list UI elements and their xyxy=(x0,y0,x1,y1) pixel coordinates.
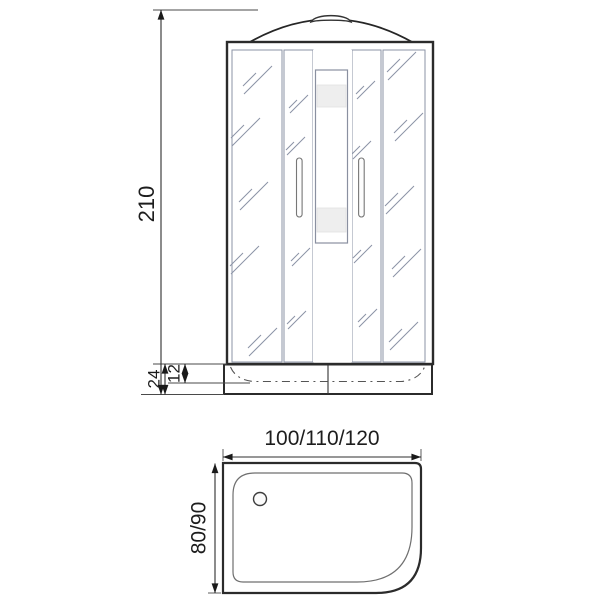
plan-view xyxy=(223,463,421,593)
dim-label-height: 210 xyxy=(134,186,159,223)
technical-drawing-page: 210 24 12 100/110/120 80/90 xyxy=(0,0,600,600)
shower-cabin-drawing: 210 24 12 100/110/120 80/90 xyxy=(0,0,600,600)
roof-dome xyxy=(249,19,413,42)
center-column xyxy=(313,50,352,362)
tray-front xyxy=(224,365,432,395)
dim-label-width: 100/110/120 xyxy=(264,427,379,450)
door-handle-left xyxy=(297,158,303,217)
front-elevation-view xyxy=(224,16,433,394)
dim-label-tray: 24 xyxy=(144,370,163,389)
dim-label-rim: 12 xyxy=(164,364,183,383)
shelf-lower xyxy=(317,208,346,232)
shelf-upper xyxy=(317,85,346,107)
dim-label-depth: 80/90 xyxy=(188,502,211,555)
drain-hole-icon xyxy=(254,493,267,506)
door-handle-right xyxy=(359,158,365,217)
